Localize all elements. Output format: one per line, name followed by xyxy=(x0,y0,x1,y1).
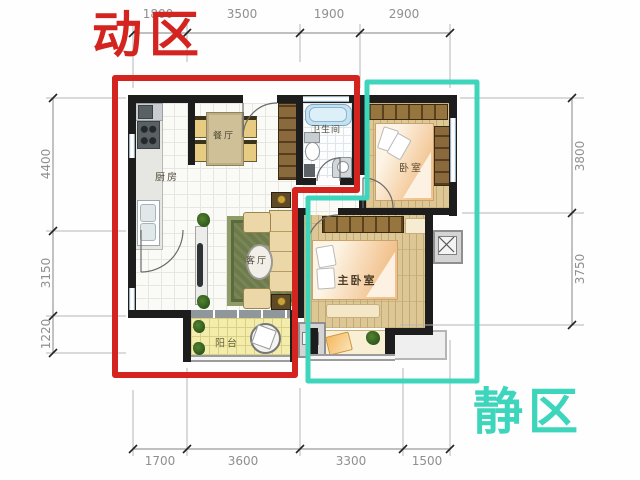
quiet-zone-outline xyxy=(308,82,477,381)
active-zone-outline xyxy=(115,78,357,375)
floorplan-canvas: 厨房 餐厅 卫生间 卧室 客厅 主卧室 阳台 1800 3500 1900 29… xyxy=(0,0,640,480)
quiet-zone-label: 静区 xyxy=(473,387,583,437)
active-zone-label: 动区 xyxy=(92,10,206,60)
